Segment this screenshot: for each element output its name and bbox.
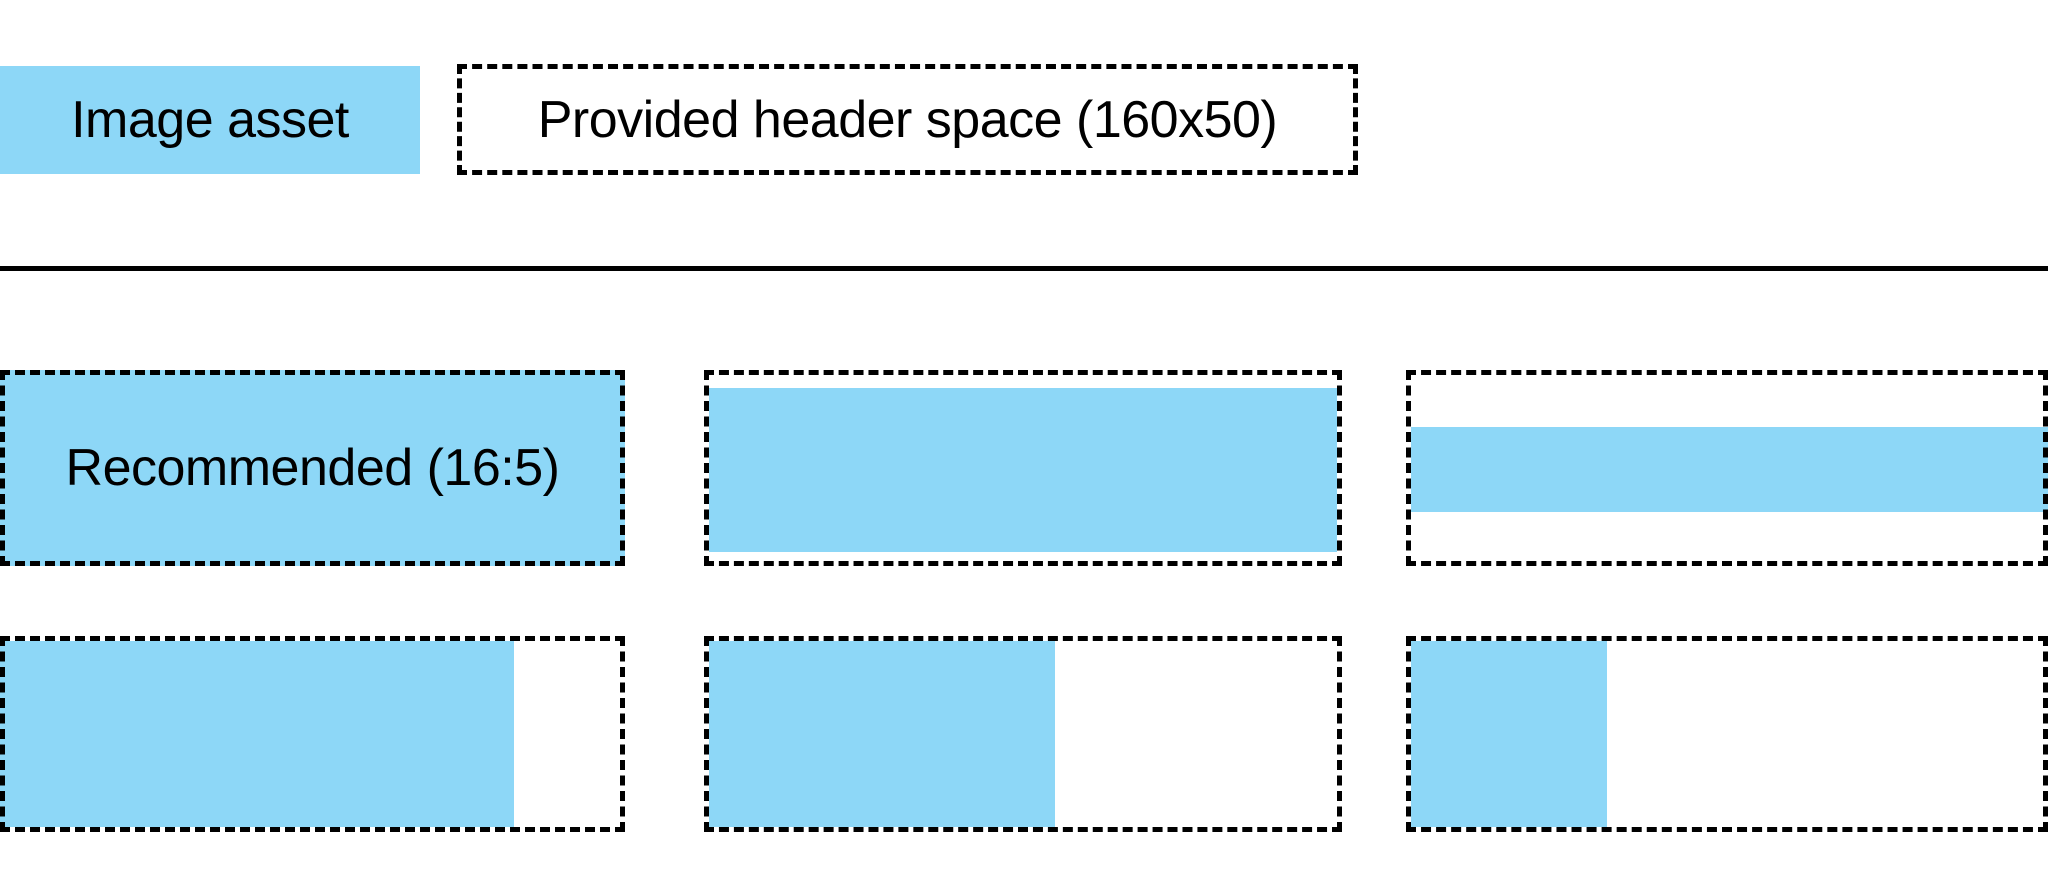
divider-line xyxy=(0,266,2048,271)
image-asset-label: Image asset xyxy=(71,90,349,150)
example-label: Recommended (16:5) xyxy=(66,438,560,498)
diagram-canvas: Image asset Provided header space (160x5… xyxy=(0,0,2048,896)
provided-header-space-label: Provided header space (160x50) xyxy=(538,90,1277,150)
header-space-outline-full-width-shorter xyxy=(704,370,1342,566)
provided-header-space-box: Provided header space (160x50) xyxy=(457,64,1358,175)
image-asset-swatch: Image asset xyxy=(0,66,420,174)
header-space-outline-partial-width-55 xyxy=(704,636,1342,832)
header-space-outline-recommended-16-5: Recommended (16:5) xyxy=(0,370,625,566)
header-space-outline-partial-width-30 xyxy=(1406,636,2048,832)
header-space-outline-partial-width-80 xyxy=(0,636,625,832)
header-space-outline-thin-horizontal-band xyxy=(1406,370,2048,566)
